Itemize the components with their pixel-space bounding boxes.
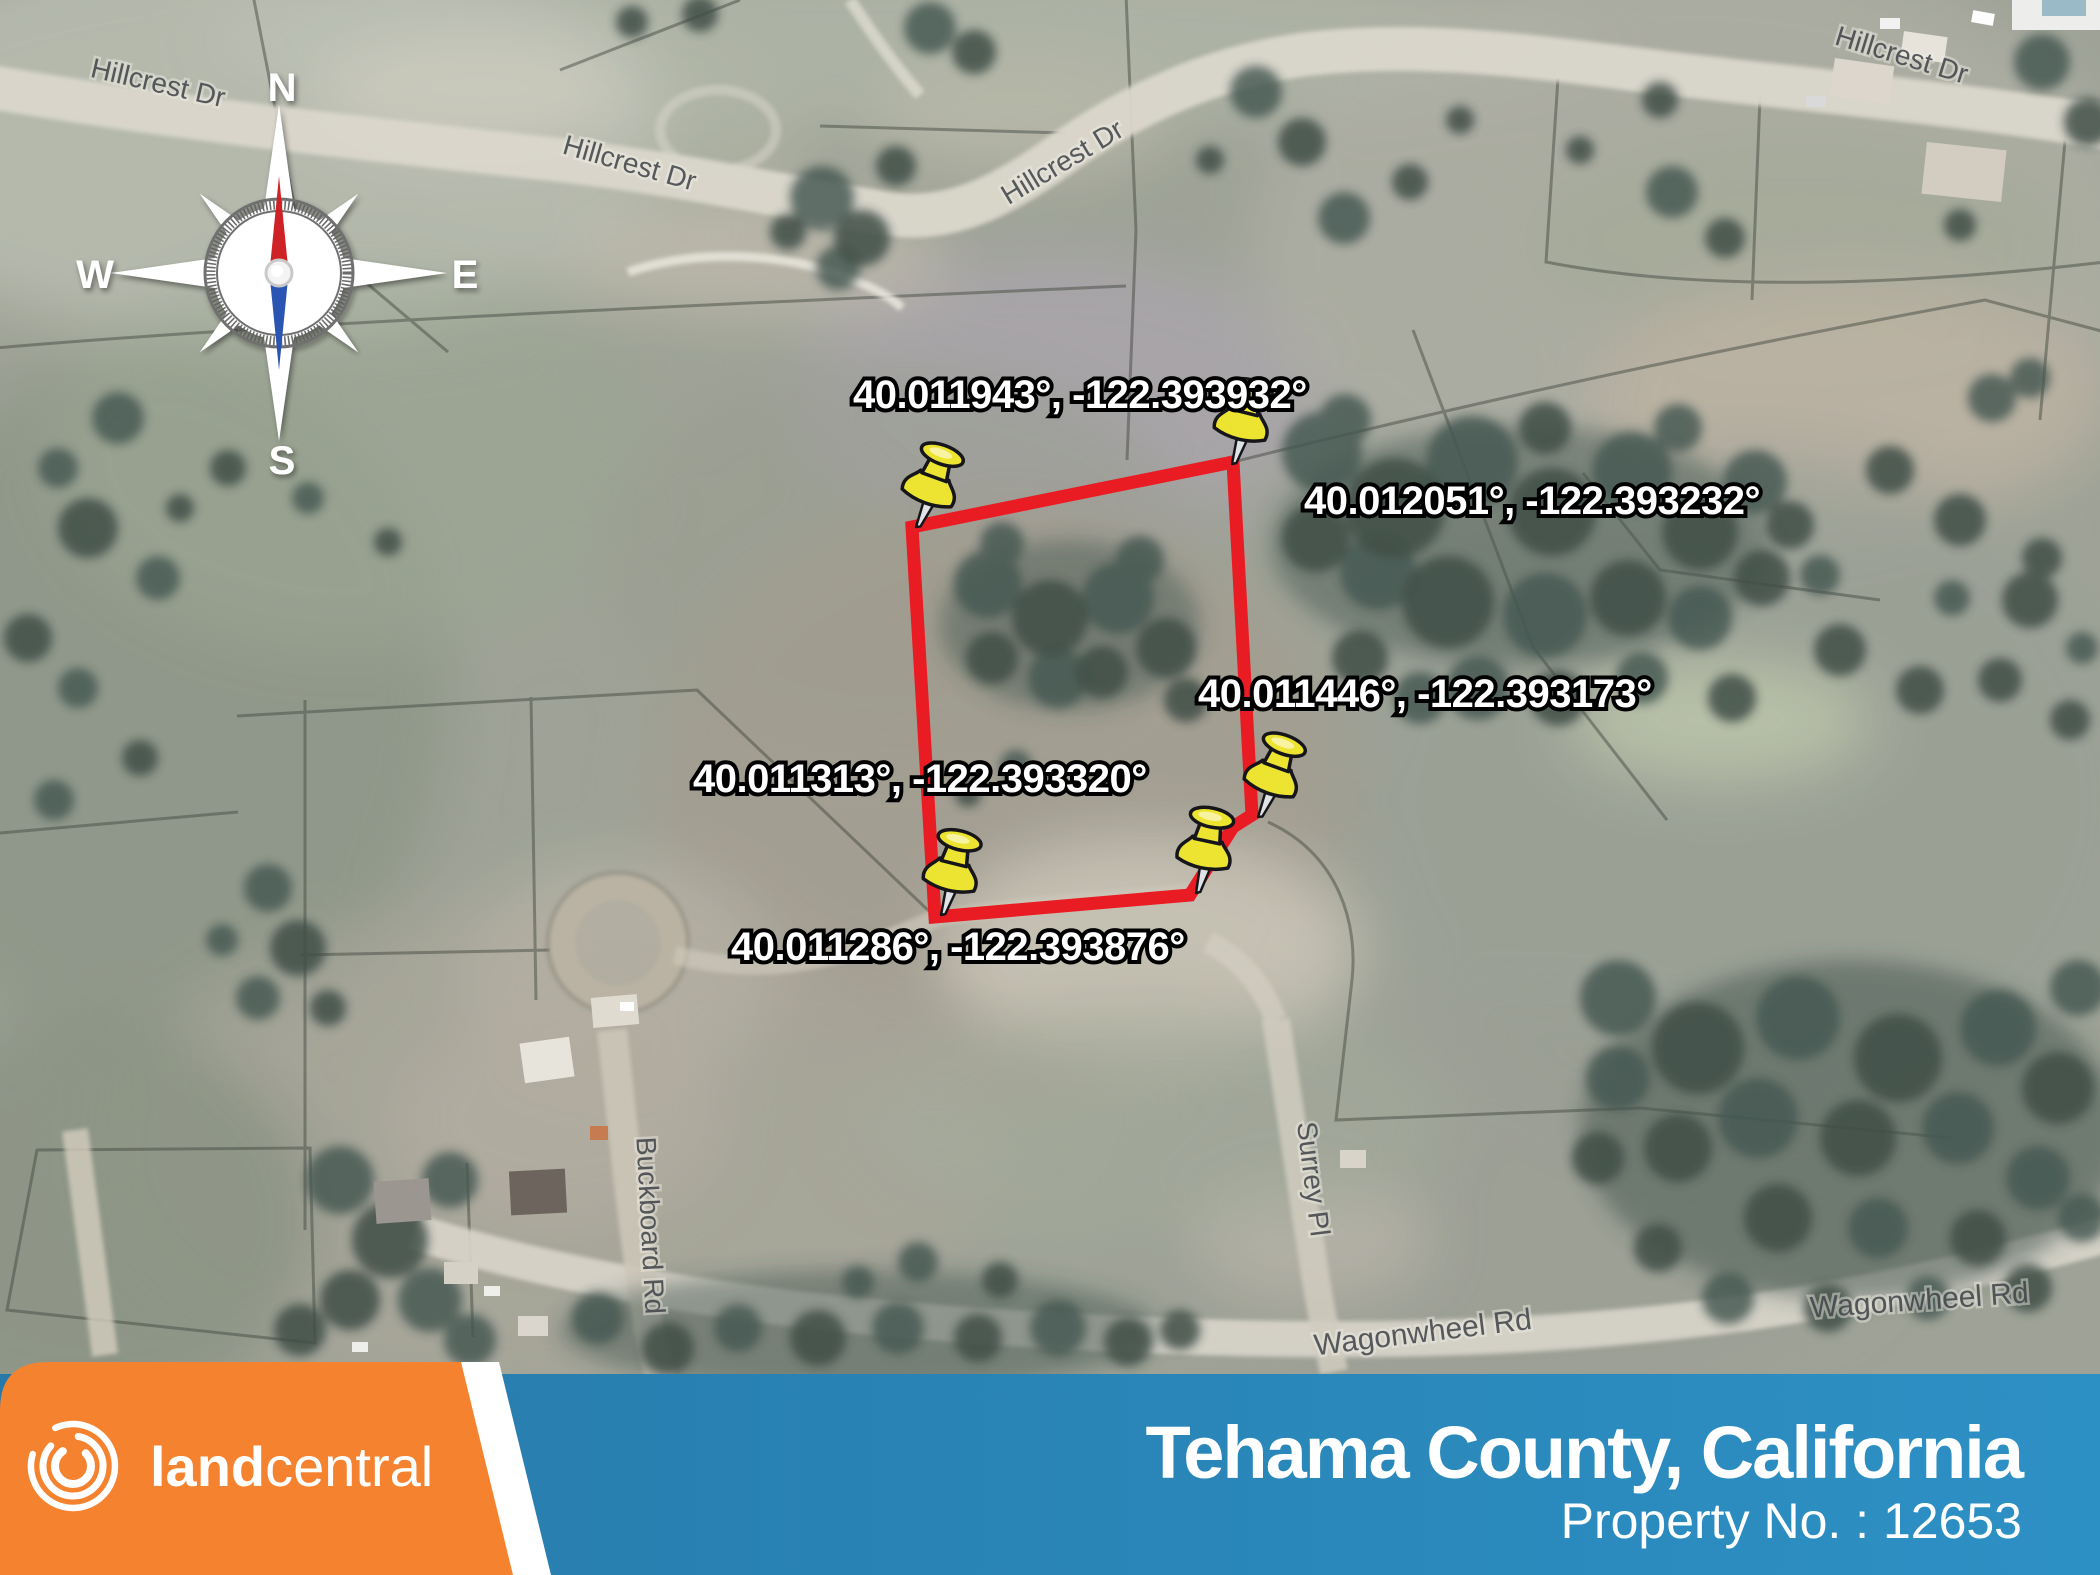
coordinate-label-southwest: 40.011286°, -122.393876°	[731, 925, 1185, 969]
property-number: Property No. : 12653	[1561, 1493, 2022, 1549]
coordinate-label-east: 40.011446°, -122.393173°	[1198, 672, 1652, 716]
county-title: Tehama County, California	[1146, 1411, 2025, 1494]
satellite-map: Hillcrest Dr Hillcrest Dr Hillcrest Dr H…	[0, 0, 2100, 1575]
compass-letter-south: S	[269, 439, 296, 483]
property-map-poster: Hillcrest Dr Hillcrest Dr Hillcrest Dr H…	[0, 0, 2100, 1575]
compass-letter-north: N	[268, 66, 297, 110]
coordinate-label-northwest: 40.011943°, -122.393932°	[853, 373, 1307, 417]
brand-central: central	[265, 1435, 433, 1498]
compass-letter-east: E	[452, 253, 479, 297]
landcentral-wordmark: landcentral	[150, 1435, 433, 1498]
footer-banner: landcentral Tehama County, California Pr…	[0, 1362, 2100, 1575]
compass-letter-west: W	[76, 253, 114, 297]
brand-land: land	[150, 1435, 265, 1498]
coordinate-label-northeast: 40.012051°, -122.393232°	[1304, 479, 1760, 523]
coordinate-label-southeast: 40.011313°, -122.393320°	[693, 757, 1147, 801]
